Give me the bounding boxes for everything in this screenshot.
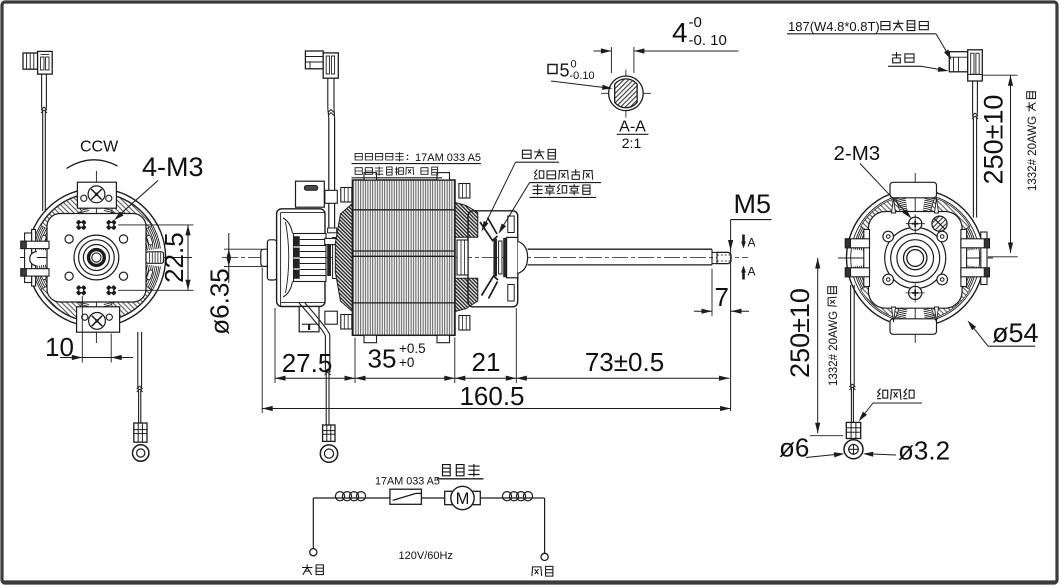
svg-text:250±10: 250±10 <box>785 288 815 378</box>
svg-text:ø3.2: ø3.2 <box>898 436 950 466</box>
svg-text:-0.10: -0.10 <box>570 70 595 82</box>
svg-text:10: 10 <box>45 332 74 362</box>
svg-text:27.5: 27.5 <box>282 348 333 378</box>
svg-text:-0: -0 <box>689 14 702 31</box>
svg-text:A: A <box>748 236 756 250</box>
svg-text:120V/60Hz: 120V/60Hz <box>399 550 453 562</box>
svg-text:4: 4 <box>672 17 688 48</box>
svg-text:17AM 033 A5: 17AM 033 A5 <box>415 152 481 164</box>
svg-text:5: 5 <box>560 61 570 81</box>
svg-text:17AM 033 A5: 17AM 033 A5 <box>375 476 440 488</box>
svg-text:73±0.5: 73±0.5 <box>585 347 664 377</box>
svg-text:ø6: ø6 <box>779 433 809 463</box>
svg-text:35: 35 <box>368 344 397 374</box>
svg-text:187(W4.8*0.8T): 187(W4.8*0.8T) <box>788 19 880 34</box>
svg-text:160.5: 160.5 <box>459 381 524 411</box>
svg-text:0: 0 <box>571 59 577 71</box>
svg-text:ø6.35: ø6.35 <box>205 268 235 335</box>
svg-text:22.5: 22.5 <box>159 232 189 283</box>
svg-text:A-A: A-A <box>619 119 646 136</box>
svg-text:7: 7 <box>715 282 729 312</box>
svg-text:2-M3: 2-M3 <box>834 142 881 165</box>
svg-text:1332# 20AWG: 1332# 20AWG <box>828 311 840 386</box>
svg-text:CCW: CCW <box>80 139 119 156</box>
svg-text:M: M <box>456 490 470 508</box>
svg-text:+0: +0 <box>399 355 414 370</box>
svg-text:1332# 20AWG: 1332# 20AWG <box>1027 116 1039 191</box>
svg-text:+0.5: +0.5 <box>399 341 426 356</box>
svg-text:21: 21 <box>472 347 501 377</box>
svg-text:4-M3: 4-M3 <box>142 152 204 182</box>
svg-text:ø54: ø54 <box>992 318 1039 348</box>
svg-text:250±10: 250±10 <box>979 95 1009 185</box>
svg-text:A: A <box>748 265 756 279</box>
svg-text:2:1: 2:1 <box>622 135 642 151</box>
svg-text:-0. 10: -0. 10 <box>689 32 727 49</box>
svg-text:M5: M5 <box>734 189 772 219</box>
